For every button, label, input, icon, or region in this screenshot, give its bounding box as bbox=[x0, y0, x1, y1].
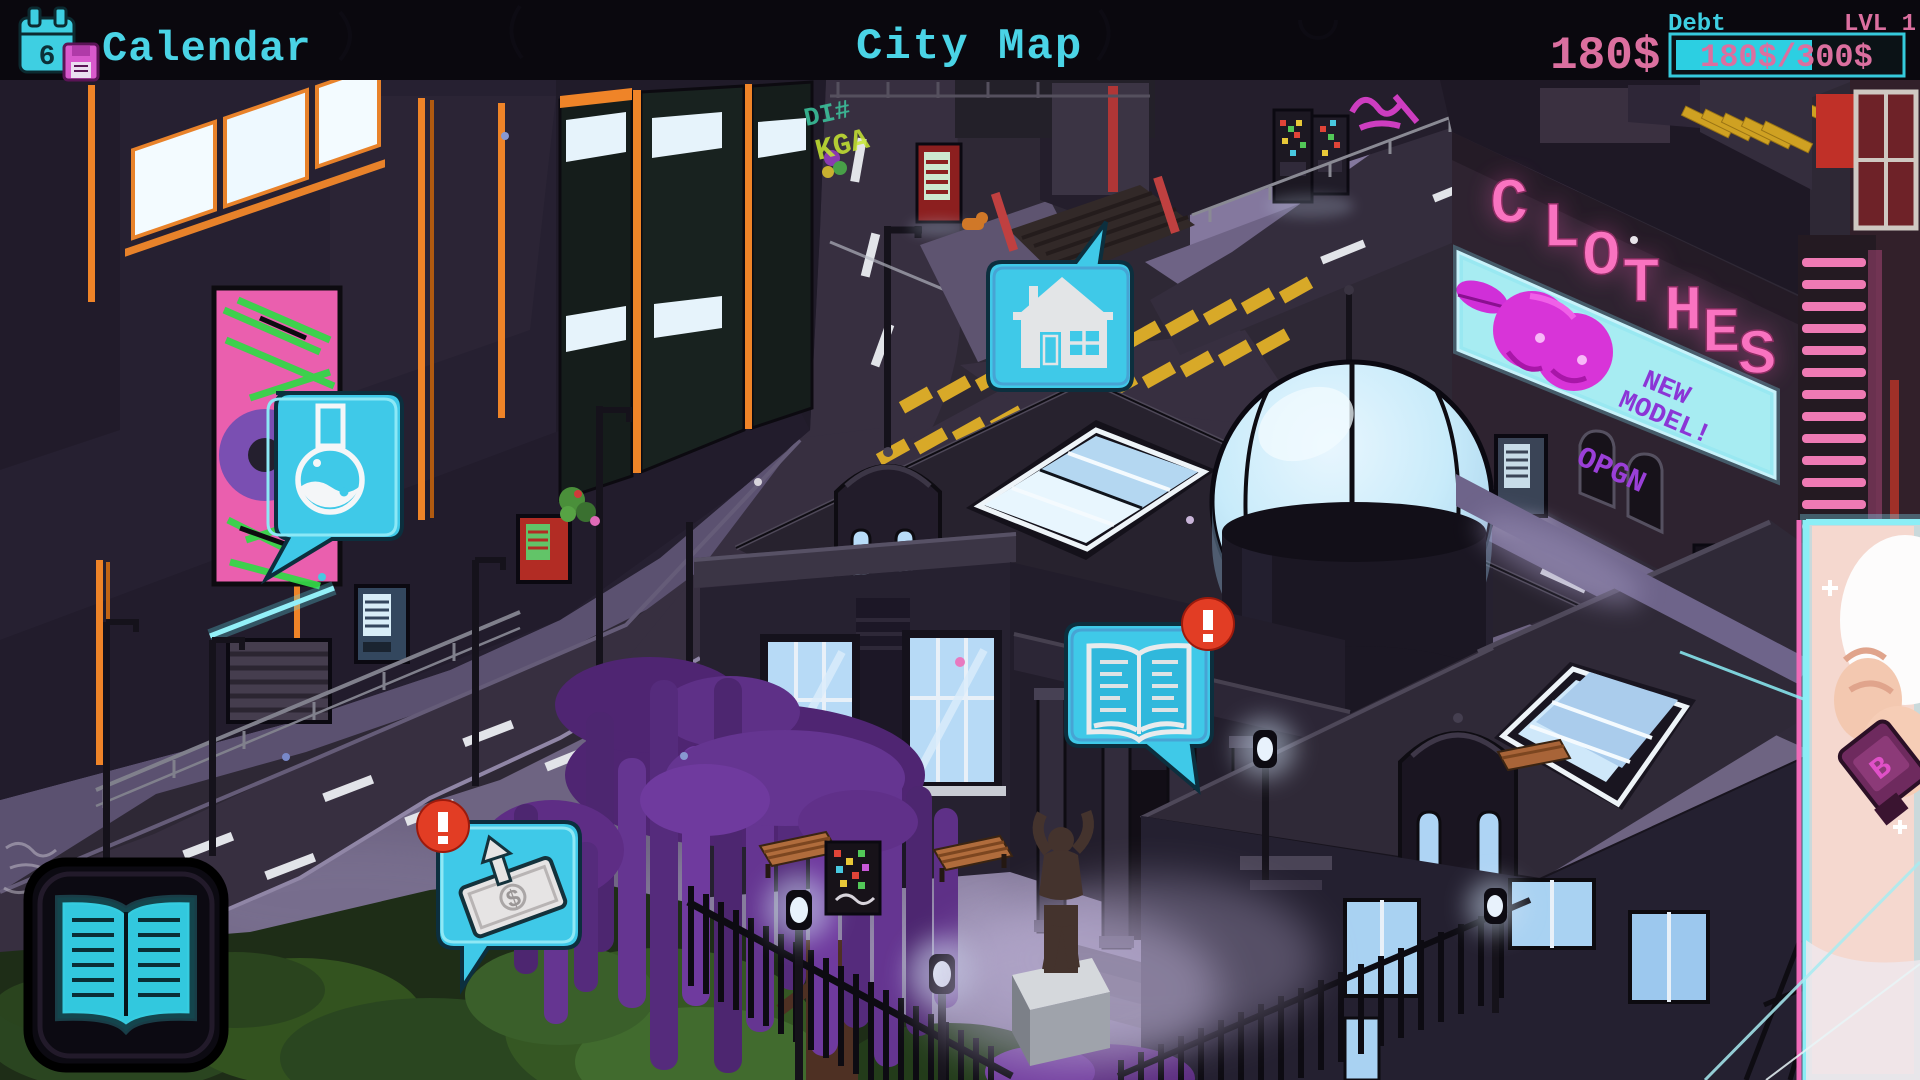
svg-text:T: T bbox=[1622, 249, 1660, 321]
svg-text:L: L bbox=[1542, 194, 1580, 266]
svg-text:O: O bbox=[1582, 222, 1620, 294]
svg-text:City Map: City Map bbox=[856, 22, 1083, 72]
svg-text:180$/300$: 180$/300$ bbox=[1700, 39, 1873, 76]
svg-text:Calendar: Calendar bbox=[102, 25, 312, 73]
svg-text:6: 6 bbox=[39, 42, 56, 73]
svg-text:H: H bbox=[1664, 277, 1702, 349]
svg-text:180$: 180$ bbox=[1550, 30, 1660, 82]
svg-text:C: C bbox=[1490, 170, 1528, 242]
